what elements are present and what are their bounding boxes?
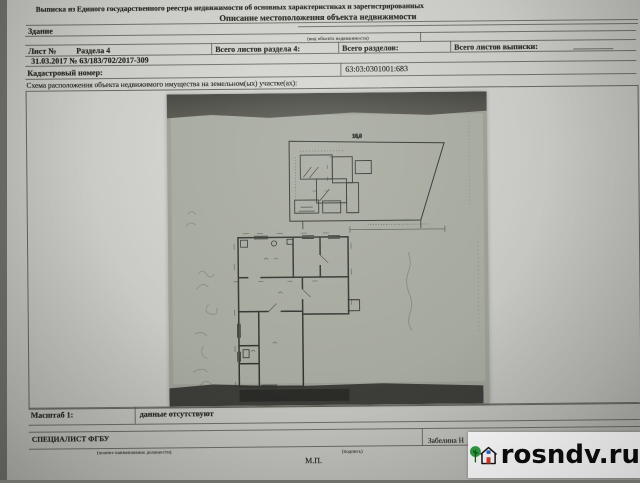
registry-extract-document: Выписка из Единого государственного реес… (0, 0, 640, 483)
site-plan-svg: 16,0 (167, 91, 490, 406)
divider (338, 42, 339, 53)
rosndv-watermark: rosndv.ru (468, 432, 640, 478)
position-caption: (полное наименование должности) (97, 449, 172, 455)
sheet-number-label: Лист № (28, 47, 56, 56)
dimension-figures (232, 155, 352, 388)
margin-notes (405, 121, 479, 332)
cadastral-number-label: Кадастровый номер: (27, 68, 102, 78)
cadastral-number-value: 63:03:0301001:683 (345, 64, 408, 74)
specialist-label: СПЕЦИАЛИСТ ФГБУ (32, 434, 109, 444)
divider (211, 43, 212, 54)
object-type-label: Здание (28, 27, 53, 36)
house-icon (481, 448, 497, 464)
parcel-top-dimension: 16,0 (352, 134, 362, 140)
signature-caption: (подпись) (342, 449, 363, 454)
rosndv-logo-icon (468, 434, 498, 476)
divider (340, 63, 341, 76)
divider (420, 32, 421, 41)
building-footprint (294, 151, 372, 214)
dimension-line (350, 224, 445, 233)
scale-value: данные отсутствуют (140, 409, 214, 419)
stamp-place-label: М.П. (305, 456, 322, 465)
door-gaps (248, 255, 321, 312)
divider (450, 41, 451, 52)
divider (25, 73, 636, 80)
divider (422, 428, 423, 445)
scale-label: Масштаб 1: (31, 410, 74, 419)
section-label: Раздела 4 (76, 46, 110, 55)
parcel-outline (289, 140, 445, 229)
handwritten-notes (186, 211, 224, 394)
watermark-site-text: rosndv.ru (501, 440, 640, 470)
floor-plan (238, 237, 349, 387)
signer-name: Забелина Н (428, 436, 464, 445)
divider (298, 23, 638, 27)
tree-icon (470, 446, 481, 462)
divider (29, 419, 640, 426)
divider (135, 407, 136, 424)
site-plan-scan-photo: 16,0 (167, 91, 490, 406)
